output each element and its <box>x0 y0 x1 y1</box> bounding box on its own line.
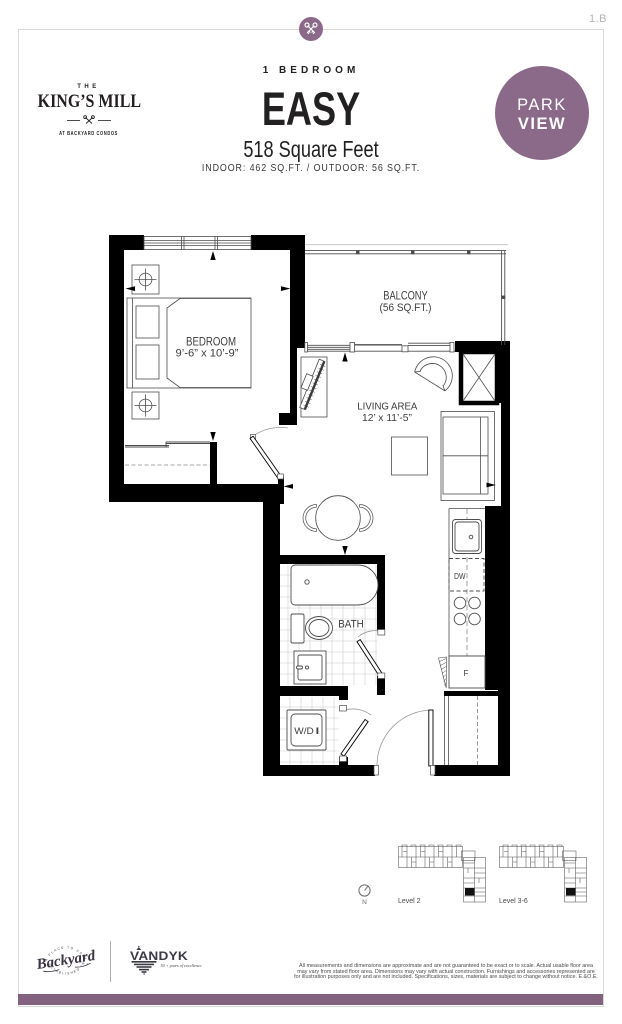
svg-text:9’-6” x 10’-9”: 9’-6” x 10’-9” <box>176 348 239 360</box>
svg-text:BALCONY: BALCONY <box>383 291 428 303</box>
svg-text:N: N <box>362 899 367 906</box>
svg-text:LIVING AREA: LIVING AREA <box>357 401 417 413</box>
svg-text:12’ x 11’-5”: 12’ x 11’-5” <box>362 412 412 424</box>
svg-text:Level 3-6: Level 3-6 <box>499 898 528 905</box>
svg-text:50 + years of excellence: 50 + years of excellence <box>161 963 202 968</box>
svg-text:F: F <box>464 669 469 678</box>
svg-text:Backyard: Backyard <box>34 948 96 973</box>
svg-text:W/D: W/D <box>294 726 314 736</box>
svg-text:(56 SQ.FT.): (56 SQ.FT.) <box>380 302 432 314</box>
svg-text:DW: DW <box>454 572 466 581</box>
svg-text:Level 2: Level 2 <box>398 898 421 905</box>
svg-text:BATH: BATH <box>338 619 364 631</box>
